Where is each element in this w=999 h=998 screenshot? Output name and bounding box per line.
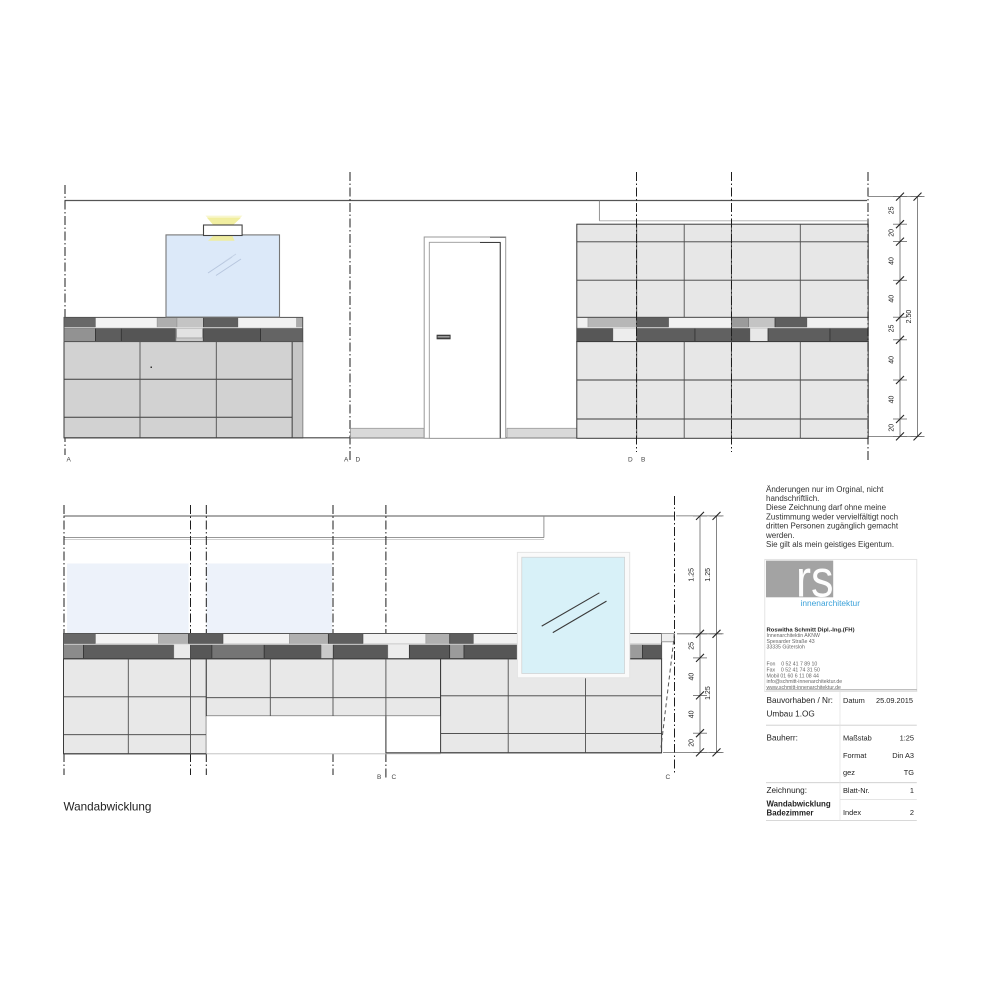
svg-text:Sie gilt als mein geistiges Ei: Sie gilt als mein geistiges Eigentum. <box>766 540 894 549</box>
svg-text:C: C <box>666 774 671 781</box>
svg-text:1:25: 1:25 <box>900 733 914 742</box>
svg-text:Index: Index <box>843 808 861 817</box>
svg-text:Blatt-Nr.: Blatt-Nr. <box>843 786 870 795</box>
svg-text:Bauvorhaben / Nr:: Bauvorhaben / Nr: <box>767 696 833 705</box>
svg-text:2.50: 2.50 <box>906 310 913 324</box>
svg-text:40: 40 <box>889 356 896 364</box>
svg-text:A: A <box>344 457 349 464</box>
svg-text:1.25: 1.25 <box>705 686 712 700</box>
svg-text:1.25: 1.25 <box>689 568 696 582</box>
svg-text:dritten Personen zugänglich ge: dritten Personen zugänglich gemacht <box>766 522 899 531</box>
svg-text:C: C <box>392 774 397 781</box>
svg-text:A: A <box>67 457 72 464</box>
svg-text:Umbau 1.OG: Umbau 1.OG <box>767 710 815 719</box>
svg-text:40: 40 <box>889 257 896 265</box>
svg-text:Zeichnung:: Zeichnung: <box>767 786 808 795</box>
svg-text:Datum: Datum <box>843 696 865 705</box>
svg-text:25.09.2015: 25.09.2015 <box>876 696 913 705</box>
svg-text:B: B <box>377 774 381 781</box>
svg-text:TG: TG <box>904 768 915 777</box>
svg-text:25: 25 <box>889 206 896 214</box>
svg-text:33335 Gütersloh: 33335 Gütersloh <box>767 645 805 651</box>
svg-text:werden.: werden. <box>765 531 794 540</box>
svg-text:innenarchitektur: innenarchitektur <box>801 598 861 608</box>
svg-text:Wandabwicklung: Wandabwicklung <box>64 801 152 814</box>
svg-text:40: 40 <box>689 710 696 718</box>
svg-text:handschriftlich.: handschriftlich. <box>766 494 819 503</box>
svg-text:40: 40 <box>889 295 896 303</box>
svg-text:20: 20 <box>889 229 896 237</box>
svg-text:gez: gez <box>843 768 855 777</box>
svg-text:Zustimmung weder vervielfältig: Zustimmung weder vervielfältigt noch <box>766 512 898 521</box>
svg-text:40: 40 <box>689 673 696 681</box>
svg-text:Din A3: Din A3 <box>892 751 914 760</box>
svg-text:B: B <box>641 457 645 464</box>
svg-text:1.25: 1.25 <box>705 568 712 582</box>
svg-text:Badezimmer: Badezimmer <box>767 809 814 818</box>
svg-text:1: 1 <box>910 786 914 795</box>
svg-text:D: D <box>628 457 633 464</box>
svg-text:Änderungen nur im Orginal, nic: Änderungen nur im Orginal, nicht <box>766 485 884 494</box>
svg-text:2: 2 <box>910 808 914 817</box>
svg-text:40: 40 <box>889 396 896 404</box>
svg-text:Wandabwicklung: Wandabwicklung <box>767 800 831 809</box>
svg-text:Bauherr:: Bauherr: <box>767 733 798 742</box>
svg-text:25: 25 <box>889 325 896 333</box>
svg-text:20: 20 <box>889 424 896 432</box>
svg-text:Maßstab: Maßstab <box>843 733 872 742</box>
svg-text:Format: Format <box>843 751 866 760</box>
svg-text:20: 20 <box>689 739 696 747</box>
svg-text:D: D <box>356 457 361 464</box>
svg-text:25: 25 <box>689 642 696 650</box>
svg-text:Diese Zeichnung darf ohne mein: Diese Zeichnung darf ohne meine <box>766 503 887 512</box>
